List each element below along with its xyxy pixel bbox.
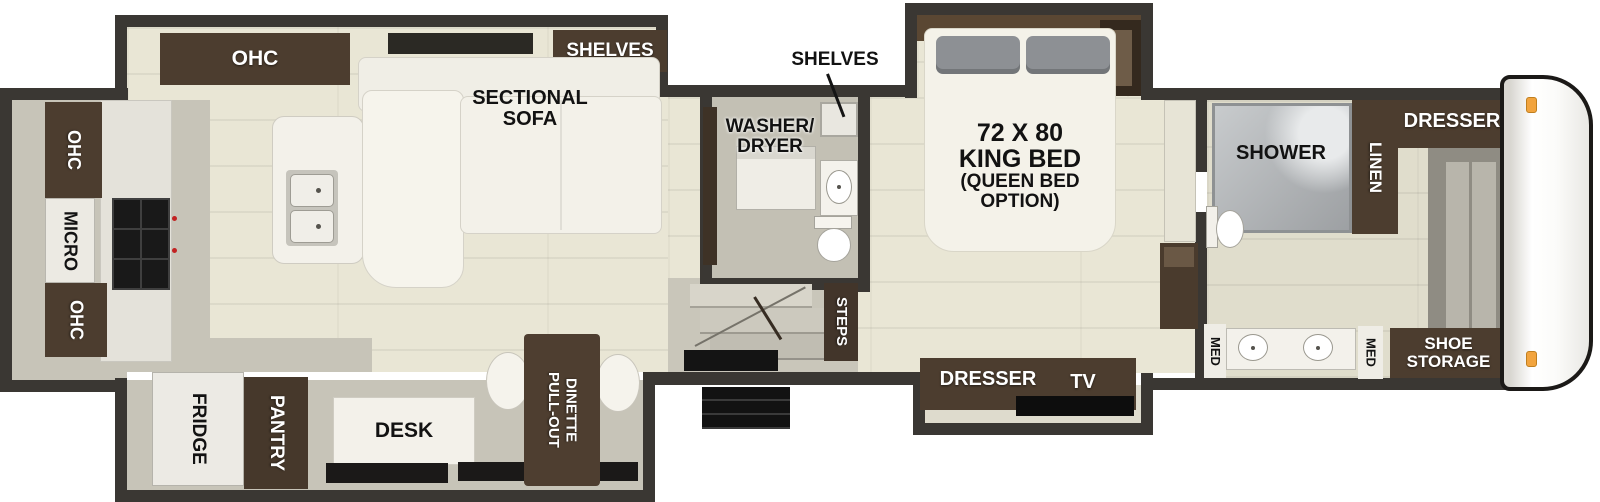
shower-label-box: SHOWER xyxy=(1218,140,1344,166)
front-wardrobe-doors xyxy=(1446,162,1496,330)
med-right-label: MED xyxy=(1364,338,1378,367)
sink-drain xyxy=(316,224,321,229)
wall-rear-bottom xyxy=(0,380,127,392)
overhead-cabinet-rear-top: OHC xyxy=(45,102,102,198)
entry-steps xyxy=(702,387,790,429)
dresser-bedroom-label-box: DRESSER xyxy=(928,366,1048,392)
shelves-mid-label: SHELVES xyxy=(791,50,878,70)
wall-bedslide-left xyxy=(905,3,917,98)
wall-dinette-slide-right xyxy=(643,372,655,502)
wall-washer-right xyxy=(858,85,870,292)
wall-dinette-slide-bottom xyxy=(115,490,655,502)
interior-step xyxy=(690,284,812,308)
kitchen-sink-basin xyxy=(290,210,334,243)
cooktop-knob xyxy=(172,216,177,221)
ohc-rear-bottom-label: OHC xyxy=(67,300,86,340)
desk: DESK xyxy=(333,397,475,465)
wall-rear-top xyxy=(0,88,128,100)
shower-label: SHOWER xyxy=(1236,143,1326,164)
shoe-storage-cabinet: SHOE STORAGE xyxy=(1390,328,1507,378)
sectional-sofa-label: SECTIONAL SOFA xyxy=(472,88,588,130)
tv-label: TV xyxy=(1070,372,1096,393)
sectional-sofa-label-box: SECTIONAL SOFA xyxy=(440,84,620,134)
fridge-label: FRIDGE xyxy=(188,393,208,465)
bed-label-box: 72 X 80 KING BED (QUEEN BED OPTION) xyxy=(928,112,1112,220)
cooktop xyxy=(112,198,170,290)
wall-bedslide-right xyxy=(1141,3,1153,100)
micro-label: MICRO xyxy=(61,211,80,271)
dresser-bedroom-label: DRESSER xyxy=(940,369,1037,390)
tv-screen xyxy=(1016,396,1134,416)
pillow xyxy=(936,36,1020,74)
steps-label: STEPS xyxy=(833,297,849,346)
washer-dryer-label: WASHER/ DRYER xyxy=(726,117,815,157)
steps-strip: STEPS xyxy=(824,283,858,361)
bed-option-label: (QUEEN BED OPTION) xyxy=(960,172,1079,212)
cooktop-knob xyxy=(172,248,177,253)
pillow xyxy=(1026,36,1110,74)
marker-light xyxy=(1526,97,1537,113)
toilet xyxy=(1216,210,1244,248)
wall-rear-left xyxy=(0,88,12,392)
bed-title-label: 72 X 80 KING BED xyxy=(959,120,1081,172)
med-left-label: MED xyxy=(1208,337,1222,366)
wall-bed-bath-upper xyxy=(1195,97,1207,172)
wall-dinette-slide-left xyxy=(115,378,127,502)
dinette-label: PULL-OUT DINETTE xyxy=(545,372,580,448)
dresser-front-label-box: DRESSER xyxy=(1400,108,1504,134)
desk-label: DESK xyxy=(375,420,433,442)
wall-kitchen-connector xyxy=(115,15,127,103)
ohc-rear-top-label: OHC xyxy=(64,130,83,170)
medicine-cabinet-left: MED xyxy=(1204,324,1226,378)
overhead-vent xyxy=(388,33,533,54)
shelves-mid-label-box: SHELVES xyxy=(783,48,887,72)
linen-label: LINEN xyxy=(1366,142,1384,193)
dinette-chair xyxy=(596,354,640,412)
marker-light xyxy=(1526,351,1537,367)
floor-galley-strip xyxy=(172,100,210,372)
ohc-top-label: OHC xyxy=(232,48,279,70)
medicine-cabinet-right: MED xyxy=(1358,326,1383,379)
wall-bedslide2-bottom xyxy=(913,423,1153,435)
pantry-cabinet: PANTRY xyxy=(244,377,308,489)
rv-floorplan: OHC MICRO OHC OHC SHELVES SECTIONAL SOFA… xyxy=(0,0,1600,502)
sink-drain xyxy=(837,185,841,189)
window-strip xyxy=(326,463,448,483)
wall-main-bottom xyxy=(643,372,925,385)
bedroom-bench-top xyxy=(1164,247,1194,267)
pantry-label: PANTRY xyxy=(266,395,286,471)
wall-bedslide-top xyxy=(905,3,1153,15)
wall-bath-bottom xyxy=(1141,378,1507,390)
wall-mid-top xyxy=(656,85,917,97)
shoe-storage-label: SHOE STORAGE xyxy=(1407,335,1491,370)
refrigerator: FRIDGE xyxy=(152,372,244,486)
dinette-table: PULL-OUT DINETTE xyxy=(524,334,600,486)
toilet xyxy=(817,228,851,262)
linen-cabinet: LINEN xyxy=(1352,100,1398,234)
bedroom-side-cabinet xyxy=(1164,100,1196,242)
overhead-cabinet-top: OHC xyxy=(160,33,350,85)
wall-bedslide2-right xyxy=(1141,373,1153,435)
sink-drain xyxy=(1251,346,1255,350)
microwave: MICRO xyxy=(45,198,95,283)
tv-label-box: TV xyxy=(1058,370,1108,394)
overhead-cabinet-rear-bottom: OHC xyxy=(45,283,107,357)
kitchen-sink-basin xyxy=(290,174,334,207)
front-cap xyxy=(1500,75,1593,391)
wall-top-left xyxy=(115,15,668,27)
sink-drain xyxy=(1316,346,1320,350)
sink-drain xyxy=(316,188,321,193)
washer-dryer-label-box: WASHER/ DRYER xyxy=(712,112,828,162)
door-mat xyxy=(684,350,778,371)
dresser-front-label: DRESSER xyxy=(1404,111,1501,132)
